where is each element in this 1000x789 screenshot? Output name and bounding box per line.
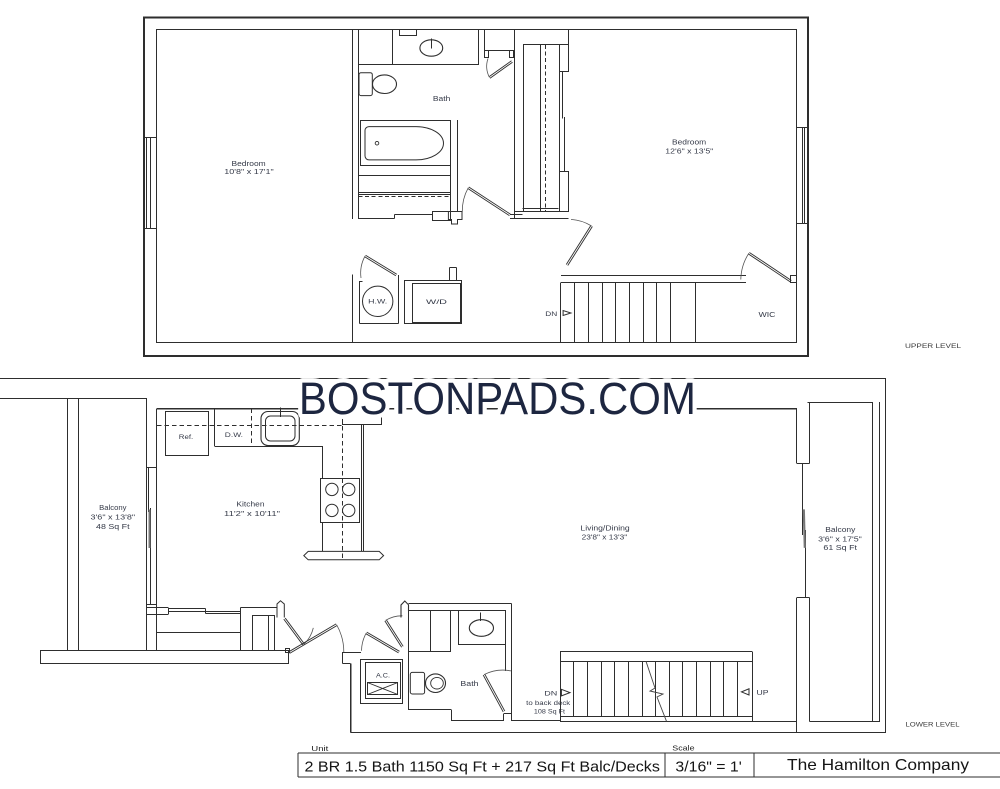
svg-text:11'2" x 10'11": 11'2" x 10'11"	[224, 509, 280, 518]
svg-text:A.C.: A.C.	[376, 672, 390, 679]
svg-text:Kitchen: Kitchen	[236, 500, 264, 509]
svg-text:to back deck: to back deck	[526, 700, 571, 707]
svg-text:Living/Dining: Living/Dining	[580, 524, 629, 533]
svg-text:3'6" x 13'8": 3'6" x 13'8"	[91, 513, 136, 522]
svg-text:W/D: W/D	[426, 299, 447, 306]
svg-text:WIC: WIC	[759, 310, 776, 319]
svg-text:UPPER LEVEL: UPPER LEVEL	[905, 343, 961, 350]
svg-text:The Hamilton Company: The Hamilton Company	[787, 757, 969, 774]
svg-text:Balcony: Balcony	[825, 525, 855, 534]
svg-text:2 BR 1.5 Bath 1150 Sq Ft + 21: 2 BR 1.5 Bath 1150 Sq Ft + 217 Sq Ft Bal…	[305, 759, 660, 776]
svg-text:48 Sq Ft: 48 Sq Ft	[96, 522, 130, 531]
svg-text:BOSTONPADS.COM: BOSTONPADS.COM	[299, 373, 696, 424]
svg-text:Scale: Scale	[672, 744, 694, 753]
svg-text:DN: DN	[544, 691, 558, 698]
svg-text:Bath: Bath	[433, 94, 451, 103]
svg-text:LOWER LEVEL: LOWER LEVEL	[906, 721, 960, 728]
svg-text:UP: UP	[757, 688, 769, 697]
svg-text:DN: DN	[545, 311, 557, 318]
svg-text:3'6" x 17'5": 3'6" x 17'5"	[818, 534, 862, 543]
svg-text:Bedroom: Bedroom	[672, 137, 706, 146]
svg-text:Ref.: Ref.	[179, 434, 194, 441]
svg-text:23'8" x 13'3": 23'8" x 13'3"	[582, 532, 628, 541]
svg-text:Balcony: Balcony	[99, 503, 127, 512]
svg-text:12'6" x 13'5": 12'6" x 13'5"	[665, 146, 713, 155]
svg-text:10'8" x 17'1": 10'8" x 17'1"	[224, 167, 274, 176]
svg-text:D.W.: D.W.	[225, 432, 243, 439]
svg-text:H.W.: H.W.	[368, 299, 387, 306]
svg-text:Unit: Unit	[311, 744, 328, 753]
svg-text:61 Sq Ft: 61 Sq Ft	[823, 543, 857, 552]
svg-text:Bath: Bath	[460, 679, 478, 688]
svg-text:3/16" = 1': 3/16" = 1'	[675, 759, 741, 776]
